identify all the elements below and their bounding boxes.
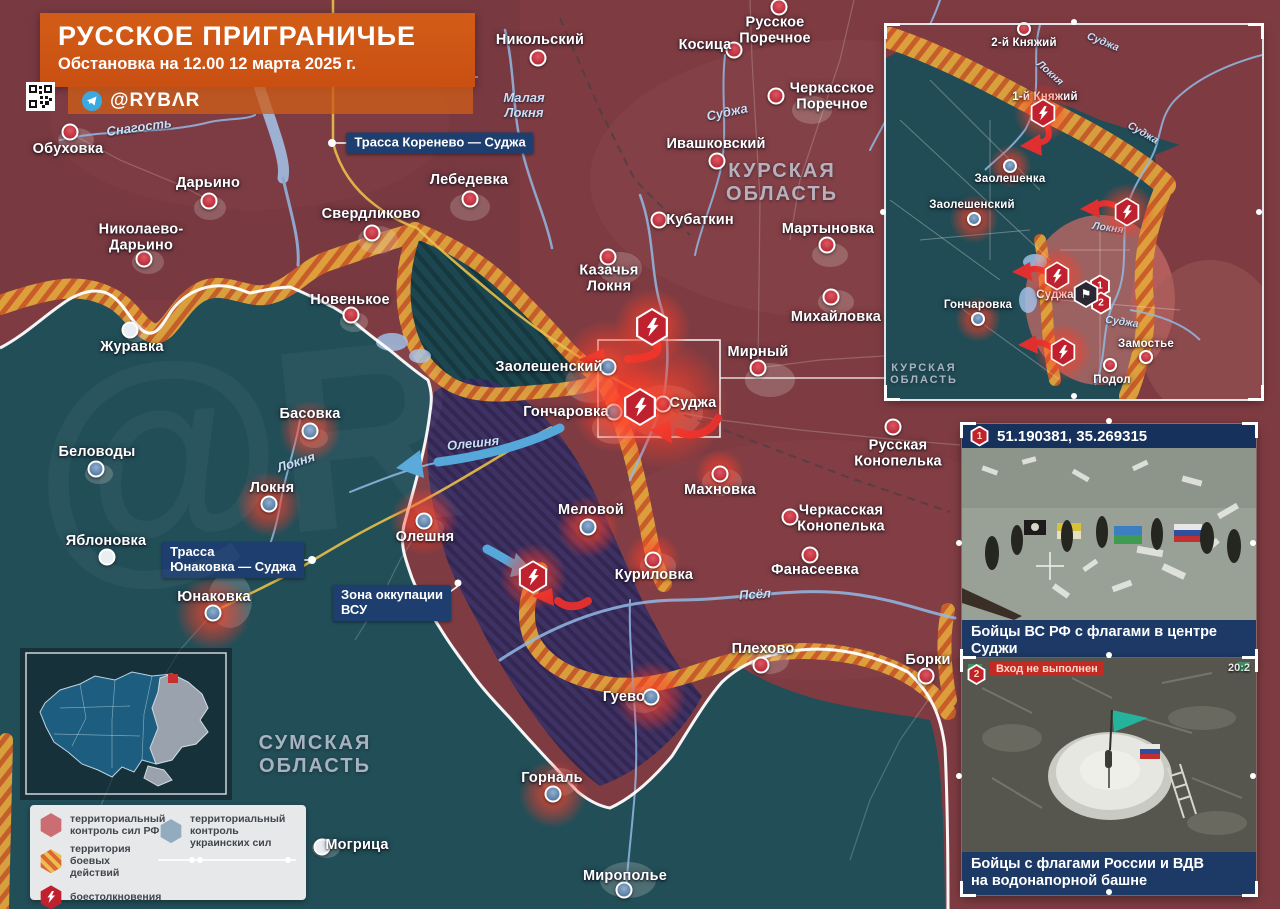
settlement-label: Меловой (558, 503, 624, 519)
photo-panel-1: 1 51.190381, 35.269315 (962, 424, 1256, 663)
settlement-marker (1017, 22, 1031, 36)
legend-scale-bar (158, 855, 296, 865)
legend-item: боестолкновения (40, 885, 155, 909)
clash-icon (1114, 197, 1140, 226)
settlement-label: 2-й Княжий (991, 37, 1056, 49)
river-label: Псёл (739, 585, 772, 602)
region-label: СУМСКАЯ ОБЛАСТЬ (259, 732, 372, 778)
settlement-label: Русская Конопелька (854, 438, 942, 469)
frame-handle-dot (956, 540, 962, 546)
settlement-marker (261, 496, 278, 513)
settlement-marker (1003, 159, 1017, 173)
page-subtitle: Обстановка на 12.00 12 марта 2025 г. (58, 55, 475, 74)
legend-item: территория боевых действий (40, 843, 155, 879)
rybar-strip: @RYBΛR (68, 87, 473, 114)
settlement-marker (768, 88, 785, 105)
photo1-header: 1 51.190381, 35.269315 (962, 424, 1256, 448)
settlement-label: Подол (1093, 374, 1130, 386)
settlement-label: Заолешенский (495, 360, 602, 376)
settlement-marker (62, 124, 79, 141)
frame-handle-dot (1106, 889, 1112, 895)
settlement-marker (1139, 350, 1153, 364)
hex-bolt-icon (40, 885, 62, 909)
settlement-marker (802, 547, 819, 564)
settlement-label: Черкасская Конопелька (797, 503, 885, 534)
settlement-label: Косица (679, 38, 732, 54)
photo1-coordinates: 51.190381, 35.269315 (997, 428, 1147, 445)
settlement-label: Заолешенский (929, 199, 1015, 211)
settlement-marker (462, 191, 479, 208)
settlement-marker (416, 513, 433, 530)
clash-icon (1050, 337, 1076, 366)
settlement-label: Обуховка (33, 142, 104, 158)
photo2-overlay-text: Вход не выполнен (990, 662, 1104, 676)
settlement-label: Мирополье (583, 869, 667, 885)
settlement-label: Плехово (732, 642, 795, 658)
frame-corner (960, 422, 976, 438)
settlement-label: Никольский (496, 33, 584, 49)
settlement-marker (205, 605, 222, 622)
settlement-label: Суджа (670, 396, 717, 412)
settlement-marker (364, 225, 381, 242)
settlement-marker (753, 657, 770, 674)
settlement-label: Яблоновка (66, 534, 147, 550)
settlement-label: Гончаровка (523, 405, 609, 421)
river-label: Малая Локня (503, 90, 544, 120)
clash-icon (1044, 261, 1070, 290)
frame-handle-dot (956, 773, 962, 779)
settlement-label: Горналь (521, 771, 583, 787)
settlement-label: Мартыновка (782, 222, 874, 238)
settlement-marker (712, 466, 729, 483)
settlement-marker (88, 461, 105, 478)
settlement-label: Басовка (279, 407, 340, 423)
settlement-marker (782, 509, 799, 526)
settlement-label: Мирный (727, 345, 788, 361)
settlement-label: Беловоды (59, 445, 136, 461)
info-box: Трасса Коренево — Суджа (346, 133, 533, 154)
settlement-label: Новенькое (310, 293, 390, 309)
settlement-label: Махновка (684, 483, 756, 499)
settlement-label: Борки (905, 653, 950, 669)
frame-corner (960, 656, 976, 672)
river-label: Локня (275, 449, 317, 475)
clash-icon (623, 388, 657, 426)
settlement-marker (771, 0, 788, 16)
river-label: Снагость (106, 115, 173, 139)
settlement-label: Фанасеевка (771, 563, 859, 579)
legend-item-label: боестолкновения (70, 891, 161, 903)
info-box: Зона оккупации ВСУ (333, 585, 451, 621)
clash-icon (518, 560, 548, 594)
settlement-label: Николаево- Дарьино (99, 222, 184, 253)
settlement-marker (967, 212, 981, 226)
settlement-label: Кубаткин (666, 213, 734, 229)
photo1-image (962, 448, 1256, 620)
frame-corner (1242, 422, 1258, 438)
settlement-marker (343, 307, 360, 324)
hex-red-icon (40, 813, 62, 837)
settlement-marker (885, 419, 902, 436)
title-banner: РУССКОЕ ПРИГРАНИЧЬЕ Обстановка на 12.00 … (40, 13, 475, 87)
region-label: КУРСКАЯ ОБЛАСТЬ (726, 160, 838, 206)
settlement-label: Русское Поречное (739, 15, 811, 46)
telegram-icon (82, 91, 102, 111)
map-legend: территориальный контроль сил РФтерритори… (30, 805, 306, 900)
settlement-marker (99, 549, 116, 566)
legend-item-label: территория боевых действий (70, 843, 155, 879)
river-label: Локня (1092, 220, 1125, 236)
settlement-marker (918, 668, 935, 685)
legend-item-label: территориальный контроль украинских сил (190, 813, 300, 849)
settlement-label: Гончаровка (944, 299, 1012, 311)
frame-handle-dot (1106, 418, 1112, 424)
settlement-marker (201, 193, 218, 210)
settlement-marker (971, 312, 985, 326)
ukraine-locator-map (20, 648, 232, 800)
legend-item: территориальный контроль сил РФ (40, 813, 155, 837)
settlement-label: Лебедевка (430, 173, 508, 189)
frame-corner (1242, 881, 1258, 897)
settlement-marker (580, 519, 597, 536)
settlement-marker (651, 212, 668, 229)
frame-corner (960, 881, 976, 897)
region-label: КУРСКАЯ ОБЛАСТЬ (890, 362, 958, 386)
river-label: Локня (1034, 58, 1065, 88)
settlement-label: Дарьино (176, 176, 240, 192)
settlement-label: Михайловка (791, 310, 881, 326)
settlement-label: Ивашковский (666, 137, 765, 153)
clash-icon (635, 308, 669, 346)
settlement-label: Суджа (1036, 289, 1073, 301)
settlement-marker (1103, 358, 1117, 372)
legend-item: территориальный контроль украинских сил (160, 813, 300, 849)
settlement-label: Черкасское Поречное (790, 81, 875, 112)
settlement-marker (302, 423, 319, 440)
settlement-marker (750, 360, 767, 377)
frame-handle-dot (1250, 773, 1256, 779)
settlement-marker (823, 289, 840, 306)
settlement-marker (122, 322, 139, 339)
settlement-label: Журавка (100, 340, 164, 356)
hex-striped-icon (40, 849, 62, 873)
river-label: Суджа (1085, 30, 1121, 54)
settlement-label: Локня (250, 481, 295, 497)
settlement-marker (819, 237, 836, 254)
settlement-label: Куриловка (615, 568, 693, 584)
river-label: Суджа (705, 100, 749, 123)
photo2-image: 2 Вход не выполнен 20:2 (962, 658, 1256, 852)
settlement-label: Замостье (1118, 338, 1174, 350)
settlement-label: Казачья Локня (579, 263, 638, 294)
settlement-label: Заолешенка (975, 173, 1046, 185)
frame-handle-dot (1250, 540, 1256, 546)
settlement-marker (530, 50, 547, 67)
page-title: РУССКОЕ ПРИГРАНИЧЬЕ (58, 21, 475, 52)
photo-panel-2: 2 Вход не выполнен 20:2 Бойцы с флагами … (962, 658, 1256, 895)
frame-handle-dot (1106, 652, 1112, 658)
settlement-label: Гуево (603, 690, 645, 706)
settlement-label: Свердликово (322, 207, 421, 223)
hex-blue-icon (160, 819, 182, 843)
settlement-label: Юнаковка (177, 590, 251, 606)
settlement-marker (545, 786, 562, 803)
legend-item-label: территориальный контроль сил РФ (70, 813, 165, 837)
telegram-handle: @RYBΛR (110, 90, 200, 112)
settlement-label: Олешня (396, 530, 455, 546)
river-label: Олешня (446, 433, 500, 453)
river-label: Суджа (1105, 314, 1140, 331)
settlement-label: Могрица (325, 838, 388, 854)
frame-corner (1242, 656, 1258, 672)
info-box: Трасса Юнаковка — Суджа (162, 542, 304, 578)
river-label: Суджа (1125, 119, 1160, 146)
settlement-marker (645, 552, 662, 569)
qr-code-icon (26, 82, 55, 111)
settlement-marker (709, 153, 726, 170)
map-canvas: ОбуховкаДарьиноНиколаево- ДарьиноСвердли… (0, 0, 1280, 909)
